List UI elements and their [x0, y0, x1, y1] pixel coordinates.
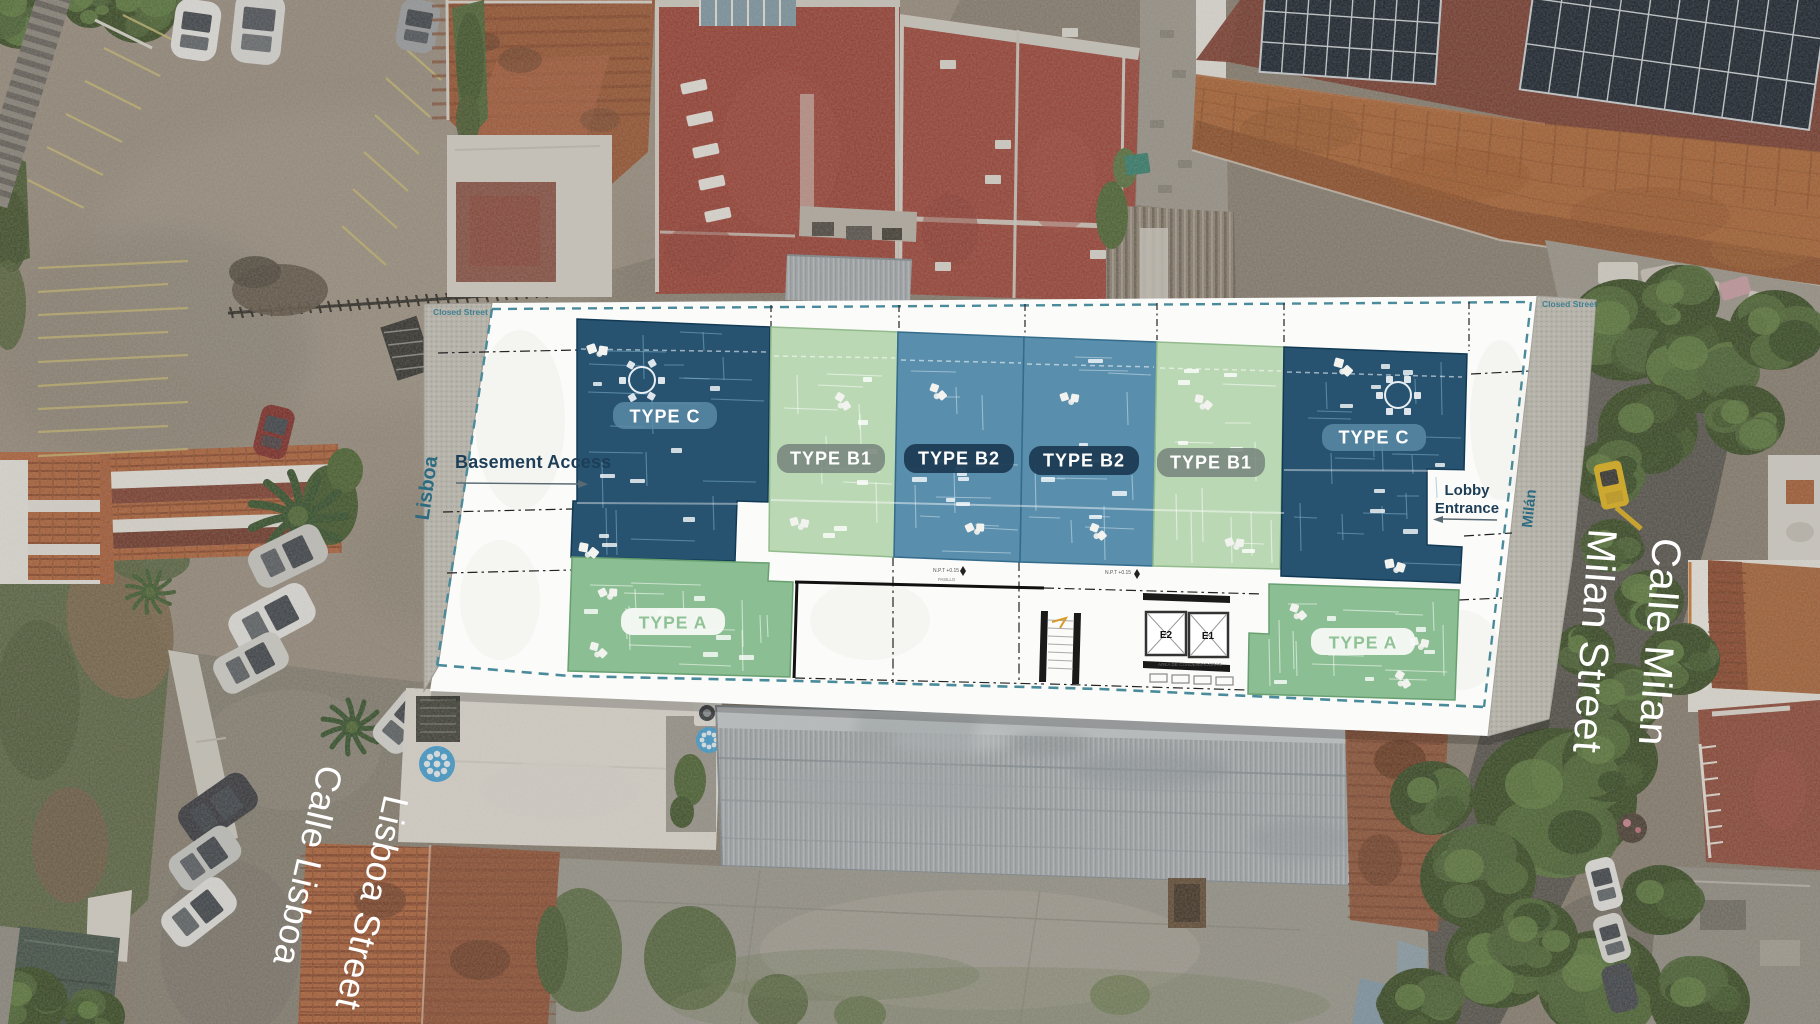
svg-text:TYPE B1: TYPE B1	[1170, 452, 1252, 472]
svg-text:Lobby: Lobby	[1445, 482, 1491, 499]
svg-text:TYPE C: TYPE C	[1338, 427, 1409, 447]
svg-text:N.P.T +0.15: N.P.T +0.15	[1105, 570, 1131, 576]
svg-text:TYPE A: TYPE A	[1329, 632, 1398, 652]
svg-text:Closed Street: Closed Street	[433, 307, 488, 317]
svg-text:N.P.T +0.15: N.P.T +0.15	[933, 568, 959, 574]
svg-text:TYPE B1: TYPE B1	[790, 448, 872, 468]
svg-text:E1: E1	[1202, 631, 1215, 642]
svg-text:Closed Street: Closed Street	[1542, 299, 1597, 309]
svg-text:E2: E2	[1160, 630, 1173, 641]
svg-text:TYPE A: TYPE A	[639, 612, 708, 632]
svg-text:TYPE B2: TYPE B2	[1043, 450, 1125, 470]
svg-text:Basement Access: Basement Access	[455, 452, 611, 472]
svg-text:TYPE C: TYPE C	[629, 406, 700, 426]
svg-text:TYPE B2: TYPE B2	[918, 448, 1000, 468]
svg-text:Entrance: Entrance	[1435, 500, 1499, 517]
svg-text:AREA DE CONDENSADORAS: AREA DE CONDENSADORAS	[1158, 662, 1222, 667]
svg-text:PASILLO: PASILLO	[938, 577, 956, 582]
